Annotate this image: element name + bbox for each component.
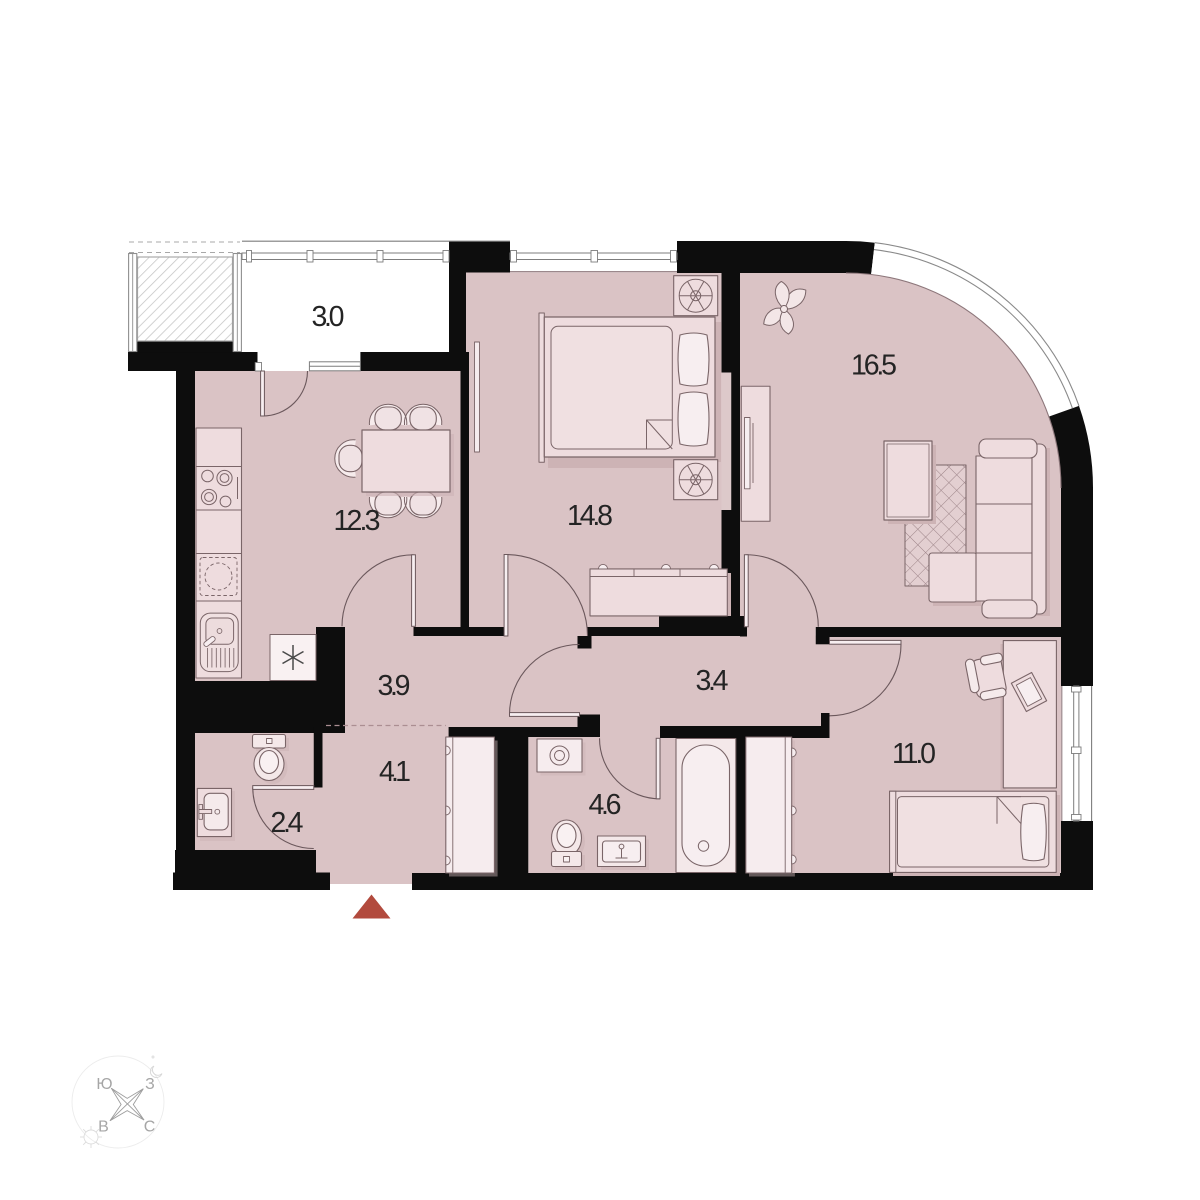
svg-text:3.9: 3.9: [378, 670, 411, 702]
svg-text:4.6: 4.6: [589, 789, 622, 821]
svg-text:11.0: 11.0: [892, 738, 936, 770]
svg-text:3.0: 3.0: [312, 301, 345, 333]
svg-text:4.1: 4.1: [379, 756, 411, 788]
svg-text:14.8: 14.8: [567, 500, 613, 532]
svg-text:С: С: [144, 1119, 156, 1136]
svg-text:З: З: [145, 1076, 155, 1093]
svg-text:12.3: 12.3: [334, 505, 381, 537]
svg-text:3.4: 3.4: [696, 665, 729, 697]
svg-text:2.4: 2.4: [271, 807, 304, 839]
svg-text:Ю: Ю: [96, 1076, 112, 1093]
svg-text:16.5: 16.5: [851, 350, 897, 382]
svg-text:В: В: [98, 1119, 109, 1136]
